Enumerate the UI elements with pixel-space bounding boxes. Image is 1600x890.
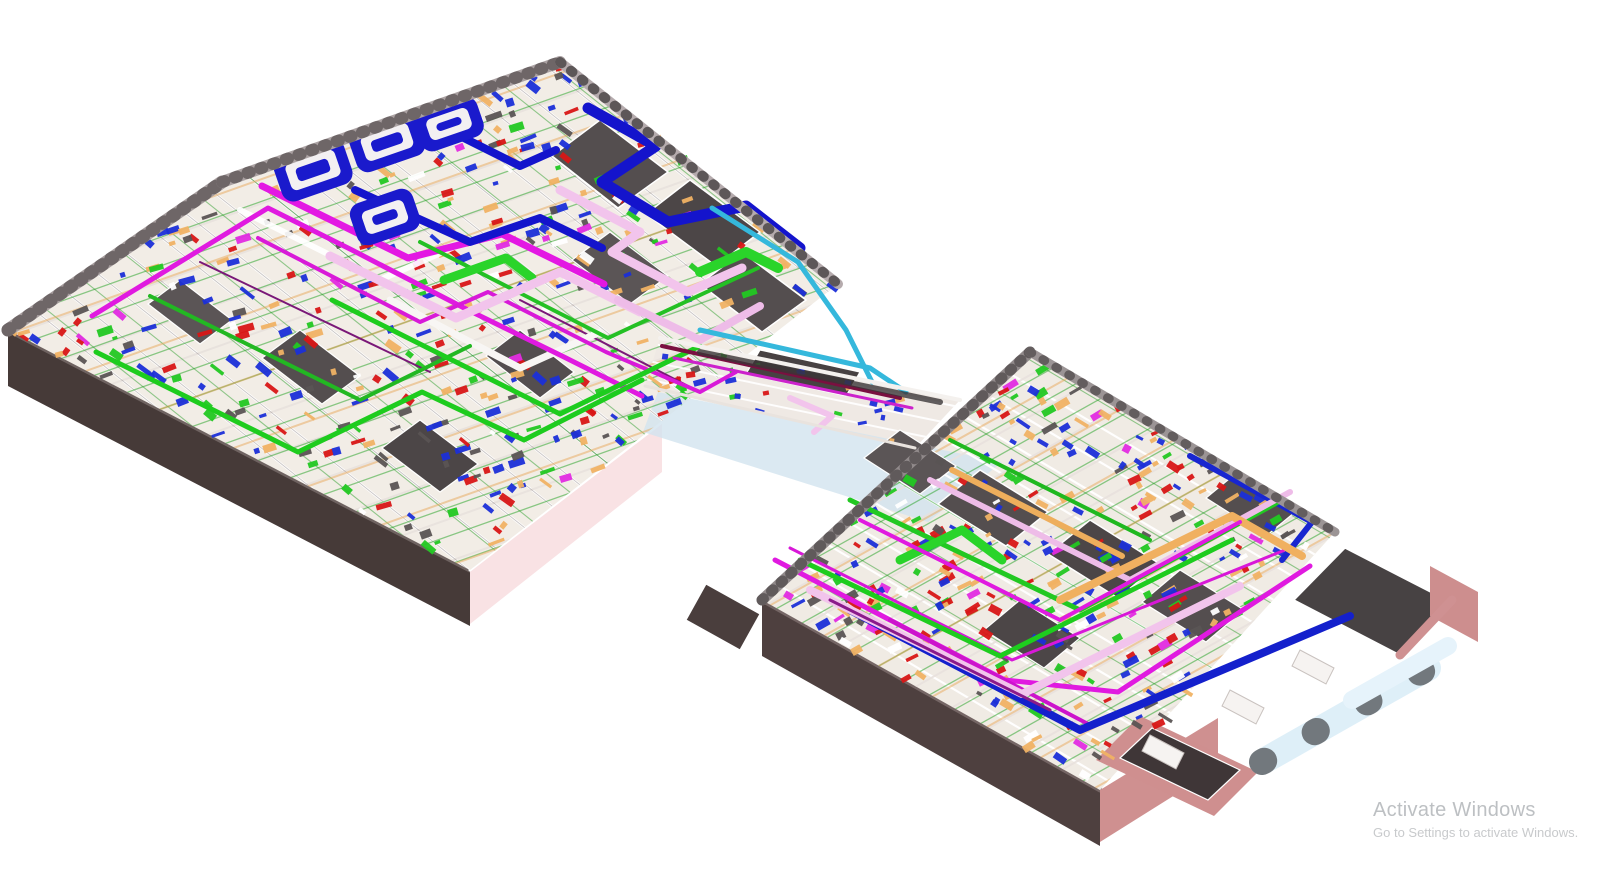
desktop-screenshot: Activate Windows Go to Settings to activ… (0, 0, 1600, 890)
bim-model-viewport (0, 0, 1600, 890)
